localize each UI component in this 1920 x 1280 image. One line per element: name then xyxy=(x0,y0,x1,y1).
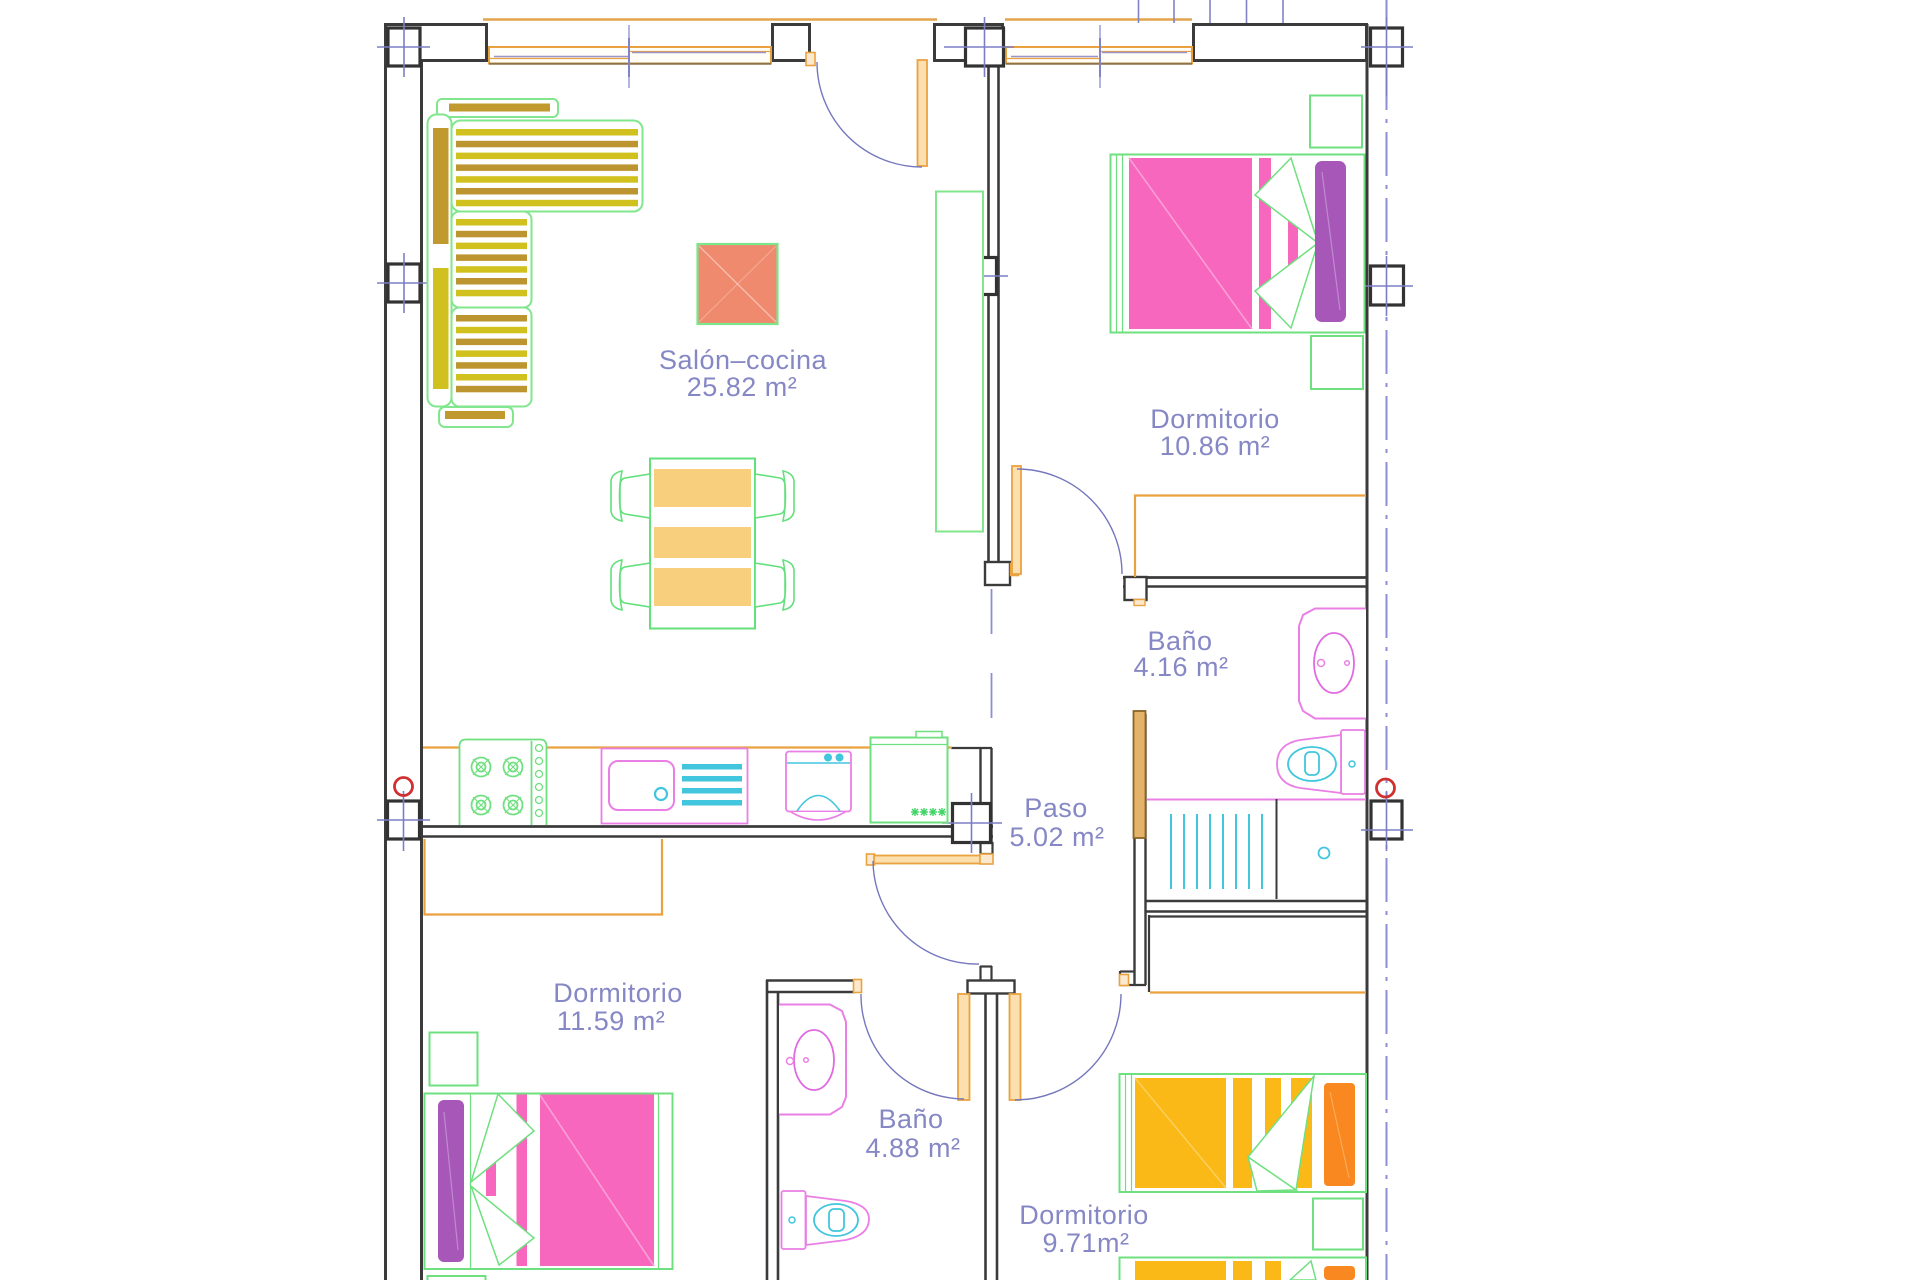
svg-text:Salón–cocina: Salón–cocina xyxy=(659,345,828,375)
svg-text:11.59 m²: 11.59 m² xyxy=(557,1006,666,1036)
svg-text:9.71m²: 9.71m² xyxy=(1042,1228,1129,1258)
svg-text:5.02 m²: 5.02 m² xyxy=(1009,822,1104,852)
svg-text:4.88 m²: 4.88 m² xyxy=(865,1133,960,1163)
svg-text:Dormitorio: Dormitorio xyxy=(553,978,683,1008)
svg-text:10.86 m²: 10.86 m² xyxy=(1160,431,1271,461)
svg-text:Dormitorio: Dormitorio xyxy=(1019,1200,1149,1230)
svg-text:Paso: Paso xyxy=(1024,793,1088,823)
svg-text:Dormitorio: Dormitorio xyxy=(1150,404,1280,434)
svg-text:25.82 m²: 25.82 m² xyxy=(687,372,798,402)
svg-text:4.16 m²: 4.16 m² xyxy=(1133,652,1228,682)
svg-text:Baño: Baño xyxy=(878,1104,943,1134)
